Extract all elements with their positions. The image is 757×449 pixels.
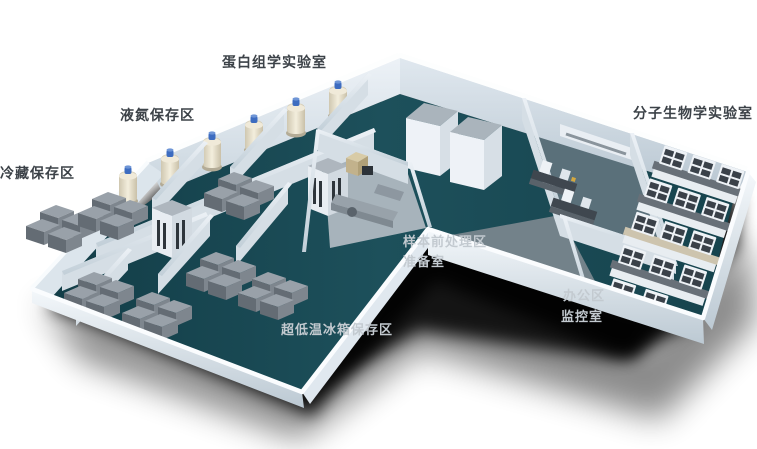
label-cold-storage: 冷藏保存区 <box>0 163 75 183</box>
label-monitoring-room: 监控室 <box>561 306 603 325</box>
label-sample-pretreatment: 样本前处理区 <box>403 231 487 250</box>
chair <box>347 207 357 217</box>
computer-monitor <box>362 166 373 175</box>
label-liquid-nitrogen-storage: 液氮保存区 <box>120 105 195 125</box>
label-proteomics-lab: 蛋白组学实验室 <box>222 52 327 72</box>
lab-floorplan-scene: 蛋白组学实验室 液氮保存区 冷藏保存区 分子生物学实验室 样本前处理区 准备室 … <box>0 0 757 449</box>
lab-floorplan-3d <box>0 0 757 449</box>
label-ult-freezer-storage: 超低温冰箱保存区 <box>281 319 393 338</box>
label-molecular-biology-lab: 分子生物学实验室 <box>633 103 753 123</box>
label-office-area: 办公区 <box>563 285 605 304</box>
label-preparation-room: 准备室 <box>403 251 445 270</box>
